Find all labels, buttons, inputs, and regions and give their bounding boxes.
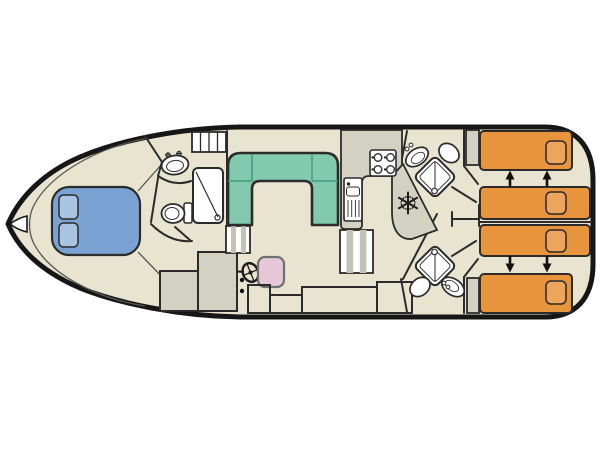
pillow (546, 141, 566, 164)
galley-sink-icon (344, 178, 362, 221)
bedside-unit-port (466, 130, 479, 165)
pillow (59, 223, 78, 247)
bedside-unit-starboard (467, 278, 479, 313)
pillow (59, 195, 78, 219)
instrument-dot (240, 289, 244, 293)
forward-steps (226, 226, 250, 253)
pillow (546, 281, 566, 304)
pillow (546, 230, 566, 252)
companionway-ladder-icon (192, 132, 226, 152)
aft-steps (340, 230, 373, 273)
boat-floorplan (0, 0, 602, 452)
deck-plan-canvas (0, 0, 602, 452)
single-bed-4 (480, 274, 572, 313)
helm-console-cabinet (198, 252, 237, 311)
instrument-dot (240, 278, 244, 282)
pillow (546, 192, 566, 214)
cabinet-port-low (160, 271, 198, 311)
bow-double-bed (52, 187, 140, 255)
stove-icon (370, 150, 396, 176)
single-bed-2 (480, 187, 590, 219)
single-bed-3 (480, 225, 590, 256)
shower-icon (193, 168, 223, 223)
single-bed-1 (480, 131, 572, 170)
helm-seat (258, 257, 284, 287)
toilet-icon (162, 203, 193, 223)
